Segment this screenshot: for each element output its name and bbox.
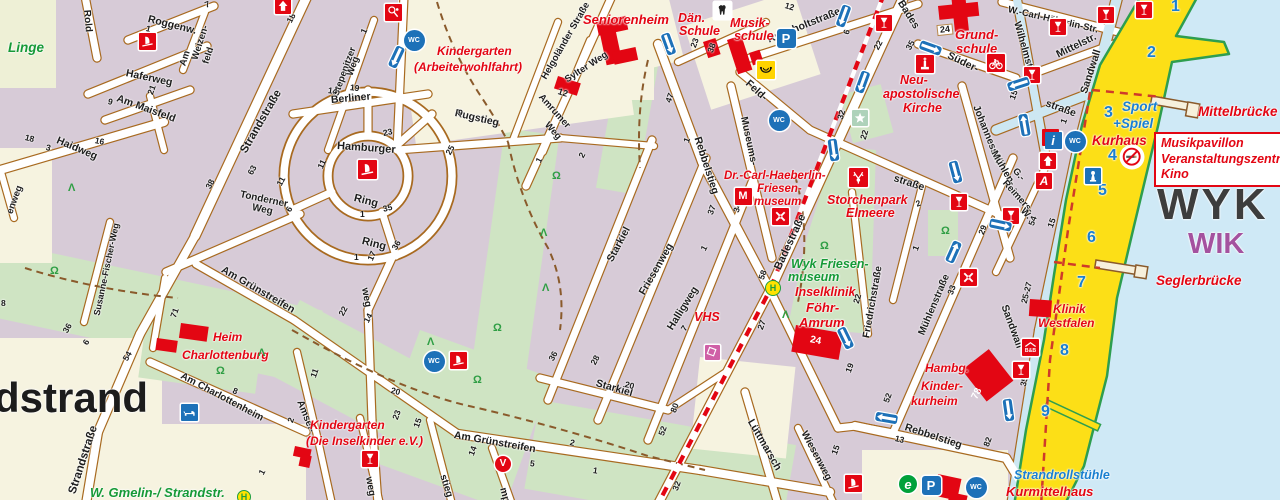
house-number: 38 — [706, 42, 717, 54]
oneway-arrow-icon — [837, 326, 855, 350]
house-number: 23 — [382, 127, 393, 137]
poi-label: Kindergarten — [437, 45, 512, 57]
oneway-arrow-icon — [1003, 398, 1015, 421]
poi-label: (Die Inselkinder e.V.) — [306, 435, 423, 447]
house-number: 23 — [391, 409, 402, 421]
house-number: 32 — [836, 109, 847, 120]
bnb-icon: B&B — [1022, 339, 1039, 356]
poi-label: WIK — [1188, 230, 1244, 259]
poi-label: W. Gmelin-/ Strandstr. — [90, 486, 225, 499]
poi-label: Föhr- — [806, 301, 839, 314]
house-number: 1 — [257, 468, 267, 476]
house-number: 5 — [529, 459, 535, 468]
wc-icon: WC — [966, 477, 987, 498]
poi-label: 78 — [971, 386, 985, 400]
dog-icon — [181, 404, 198, 421]
street-label: Friesenweg — [637, 242, 675, 297]
stag-icon — [849, 168, 868, 187]
church-icon — [916, 55, 934, 73]
wine-icon — [1013, 362, 1029, 378]
house-number: 35 — [904, 39, 916, 51]
echarge-icon: e — [899, 475, 917, 493]
street-label: Mühlenstraße — [917, 273, 952, 337]
house-number: 63 — [246, 164, 258, 176]
street-label: mp — [497, 486, 511, 500]
vegetation-icon: Λ — [540, 228, 547, 239]
oneway-arrow-icon — [661, 32, 677, 56]
poi-label: Elmeere — [846, 207, 895, 220]
house-number: 19 — [844, 362, 855, 374]
vegetation-icon: Ω — [493, 323, 502, 334]
house-number: 52 — [657, 425, 668, 437]
street-label: Ring — [361, 236, 387, 253]
tennis-icon — [385, 4, 402, 21]
house-number: 14 — [467, 445, 478, 457]
house-number: 37 — [706, 204, 717, 216]
house-number: 22 — [337, 305, 349, 317]
poi-label: WYK — [1157, 183, 1269, 227]
posthorn-icon — [757, 61, 775, 79]
house-number: 58 — [757, 269, 768, 281]
wine-icon — [1050, 19, 1066, 35]
house-number: 2 — [286, 416, 296, 423]
house-number: 54 — [1027, 215, 1038, 227]
oneway-arrow-icon — [945, 240, 962, 264]
house-number: 1 — [534, 156, 544, 164]
wc-icon: WC — [1065, 131, 1086, 152]
poi-label: +Spiel — [1113, 117, 1153, 131]
vegetation-icon: Ω — [820, 241, 829, 252]
street-label: Feld- — [743, 79, 769, 104]
vegetation-icon: Λ — [68, 183, 75, 194]
house-number: 1 — [911, 244, 921, 251]
street-label: straße — [1044, 99, 1077, 120]
house-number: 52 — [882, 392, 893, 404]
poi-label: 2 — [1147, 45, 1156, 61]
street-label: Wilhelmstr. — [1011, 20, 1035, 74]
house-number: 20 — [390, 386, 401, 397]
poi-label: Inselklinik — [795, 286, 855, 299]
house-number: 2 — [569, 438, 576, 447]
house-number: 18 — [24, 133, 35, 144]
wine-icon — [1098, 7, 1114, 23]
house-number: 12 — [784, 1, 795, 12]
poi-label: 7 — [1077, 275, 1086, 291]
vbank-icon: V — [495, 456, 511, 472]
house-number: 2 — [577, 151, 587, 159]
tooth-icon — [714, 2, 731, 19]
house-number: 1 — [1059, 117, 1069, 124]
wc-icon: WC — [424, 351, 445, 372]
vegetation-icon: Λ — [782, 310, 789, 321]
poi-label: Amrum — [799, 316, 845, 329]
house-number: 25 — [444, 144, 456, 156]
street-label: Friedrichstraße — [862, 265, 884, 338]
house-number: 22 — [872, 39, 884, 51]
house-number: 19 — [349, 83, 360, 93]
hostel-icon — [1040, 153, 1056, 169]
street-label: weg — [363, 476, 376, 497]
poi-label: Kurhaus — [1092, 134, 1147, 148]
windsurf-icon — [358, 160, 377, 179]
house-number: 15 — [412, 417, 423, 429]
house-number: 16 — [94, 136, 105, 146]
street-label: Wiesenweg — [799, 429, 833, 482]
wc-icon: WC — [769, 110, 790, 131]
street-label: weg — [359, 287, 372, 308]
poi-label: 9 — [1041, 404, 1050, 420]
map-overlay: Musikpavillon Veranstaltungszentr. Kino … — [0, 0, 1280, 500]
house-number: 11 — [309, 367, 320, 378]
poi-label: Kurmittelhaus — [1006, 485, 1093, 498]
vegetation-icon: Λ — [427, 337, 434, 348]
poi-label: 1 — [1171, 0, 1180, 15]
vegetation-icon: Ω — [473, 375, 482, 386]
vegetation-icon: Ω — [50, 266, 59, 277]
vegetation-icon: Λ — [542, 283, 549, 294]
poi-label: 5 — [1098, 183, 1107, 199]
street-label: Museums- — [738, 115, 758, 165]
street-label: Lüttmarsch — [745, 418, 783, 473]
poi-label: Grund- — [955, 28, 998, 41]
poi-label: 8 — [1060, 343, 1069, 359]
nosmoke-icon — [1121, 146, 1143, 168]
street-label: Haidweg — [55, 136, 99, 163]
windsurf-icon — [845, 475, 862, 492]
house-number: 82 — [982, 436, 993, 448]
poi-label: Dr.-Carl-Haeberlin- — [724, 171, 826, 183]
poi-label: Strandrollstühle — [1014, 469, 1110, 482]
museum-icon: M — [735, 188, 752, 205]
info-icon: i — [1045, 132, 1062, 149]
street-label: Am Grünstreifen — [219, 265, 296, 316]
house-number: 8 — [231, 386, 239, 396]
windmill-icon — [772, 208, 789, 225]
parking-icon: P — [777, 29, 796, 48]
street-label: Ring — [353, 193, 379, 210]
windsurf-icon — [450, 352, 467, 369]
house-number: 7 — [204, 0, 211, 9]
hostel-icon — [275, 0, 291, 14]
hstop-icon: H — [237, 490, 251, 500]
house-number: 11 — [316, 158, 328, 170]
poi-label: Klinik — [1053, 303, 1086, 315]
street-label: Rebbelstieg — [903, 422, 963, 450]
wine-icon — [876, 15, 892, 31]
house-number: 2 — [915, 199, 922, 209]
street-label: enweg — [6, 184, 25, 215]
musikpavillon-callout: Musikpavillon Veranstaltungszentr. Kino — [1154, 132, 1280, 187]
poi-label: museum — [788, 271, 839, 284]
house-number: 1 — [359, 27, 369, 35]
oneway-arrow-icon — [388, 45, 405, 69]
house-number: 9 — [107, 97, 114, 106]
poi-label: 24 — [809, 335, 822, 347]
poi-label: Westfalen — [1038, 317, 1094, 329]
street-label: Rold — [81, 9, 93, 32]
poi-label: Linge — [8, 41, 44, 55]
wine-icon — [1136, 2, 1152, 18]
street-label: 24 — [938, 25, 953, 35]
house-number: 14 — [362, 312, 374, 324]
poi-label: Heim — [213, 331, 242, 343]
street-label: Hamburger — [337, 141, 396, 156]
vegetation-icon: Ω — [216, 366, 225, 377]
parking-icon: P — [922, 476, 941, 495]
wine-icon — [951, 194, 967, 210]
house-number: 17 — [366, 250, 378, 262]
poi-label: Wyk Friesen- — [791, 258, 869, 271]
house-number: 36 — [61, 322, 73, 334]
street-label: straße — [892, 173, 925, 193]
street-label: Weg — [251, 203, 274, 217]
poi-label: Charlottenburg — [182, 349, 269, 361]
poi-label: schule — [956, 42, 997, 55]
bike-icon — [987, 54, 1005, 72]
map-canvas[interactable]: Musikpavillon Veranstaltungszentr. Kino … — [0, 0, 1280, 500]
poi-label: Seglerbrücke — [1156, 274, 1242, 288]
house-number: 38 — [204, 178, 216, 190]
house-number: 13 — [894, 434, 905, 445]
poi-label: Musik- — [730, 17, 770, 30]
poi-label: 3 — [1104, 105, 1113, 121]
house-number: 22 — [859, 129, 870, 140]
house-number: 8 — [1, 299, 6, 308]
house-number: 1 — [682, 136, 692, 143]
poi-label: museum — [754, 197, 801, 209]
house-number: 27 — [756, 319, 767, 331]
house-number: 33 — [946, 284, 957, 296]
oneway-arrow-icon — [919, 40, 943, 56]
street-label: dstrand — [0, 377, 148, 419]
house-number: 14 — [327, 86, 338, 96]
poi-label: Neu- — [900, 74, 928, 87]
house-number: 25-27 — [1020, 281, 1034, 304]
oneway-arrow-icon — [875, 412, 898, 425]
street-label: feld — [201, 46, 215, 65]
callout-line: Veranstaltungszentr. — [1161, 152, 1280, 168]
poi-label: Storchenpark — [827, 194, 908, 207]
poi-label: Kindergarten — [310, 419, 385, 431]
poi-label: (Arbeiterwohlfahrt) — [414, 61, 522, 73]
house-number: 6 — [81, 338, 91, 346]
street-label: Sylter Weg — [563, 50, 609, 85]
house-number: 28 — [589, 354, 601, 366]
house-number: 11 — [275, 175, 287, 187]
house-number: 7 — [679, 324, 689, 333]
house-number: 35 — [382, 203, 393, 214]
pink-icon — [705, 345, 720, 360]
vegetation-icon: Ω — [941, 226, 950, 237]
poi-label: Kirche — [903, 102, 942, 115]
house-number: 15 — [830, 444, 841, 456]
poi-label: Seniorenheim — [583, 13, 669, 26]
poi-label: 4 — [1108, 148, 1117, 164]
oneway-arrow-icon — [948, 160, 962, 184]
oneway-arrow-icon — [1007, 76, 1031, 91]
street-label: Strandstraße — [239, 88, 284, 155]
poi-label: 6 — [1087, 230, 1096, 246]
house-number: 21 — [146, 84, 157, 96]
oneway-arrow-icon — [1018, 113, 1031, 136]
house-number: 47 — [664, 92, 675, 104]
poi-label: Dän. — [678, 12, 705, 25]
street-label: Starkiel — [605, 225, 632, 263]
house-number: 23 — [689, 37, 700, 49]
house-number: 80 — [669, 402, 680, 414]
chess-icon — [1085, 168, 1101, 184]
vegetation-icon: Λ — [258, 348, 265, 359]
house-number: 20 — [624, 380, 635, 391]
oneway-arrow-icon — [855, 70, 871, 94]
poi-label: Schule — [679, 25, 720, 38]
poi-label: Hambg. — [925, 362, 969, 374]
windmill-icon — [960, 269, 977, 286]
wine-icon — [362, 451, 378, 467]
house-number: 1 — [699, 244, 709, 252]
house-number: 22 — [852, 293, 863, 304]
poi-label: Kinder- — [921, 380, 963, 392]
windsurf-icon — [139, 33, 156, 50]
house-number: 36 — [547, 350, 559, 362]
house-number: 1 — [360, 210, 365, 219]
house-number: 29 — [977, 224, 988, 236]
oneway-arrow-icon — [828, 138, 840, 161]
house-number: 3 — [45, 143, 52, 152]
house-number: 15 — [1046, 217, 1057, 229]
poi-label: schule — [734, 30, 774, 43]
house-number: 6 — [284, 205, 294, 213]
poi-label: VHS — [694, 311, 720, 324]
street-label: Bades — [896, 0, 922, 31]
poi-label: apostolische — [883, 88, 959, 101]
poi-label: Sport — [1122, 100, 1157, 114]
callout-line: Musikpavillon — [1161, 136, 1280, 152]
svg-text:B&B: B&B — [1024, 348, 1035, 354]
poi-label: Friesen- — [757, 184, 802, 196]
street-label: Sandwall — [999, 304, 1024, 350]
house-number: 1 — [592, 466, 598, 475]
house-number: 71 — [169, 307, 180, 319]
street-label: Susanne-Fischer-Weg — [93, 222, 121, 316]
house-number: 36 — [390, 239, 402, 251]
wc-icon: WC — [404, 30, 425, 51]
street-label: Sandwall — [1079, 49, 1103, 96]
house-number: 54 — [121, 350, 133, 362]
poi-label: kurheim — [911, 395, 958, 407]
house-number: 1 — [354, 253, 359, 262]
street-label: 12 — [557, 87, 569, 99]
apotheke-icon: A — [1036, 173, 1052, 189]
house-number: 6 — [842, 29, 851, 36]
vegetation-icon: Ω — [552, 171, 561, 182]
house-number: 32 — [671, 480, 682, 492]
star-icon — [852, 110, 868, 126]
street-label: Am Maisfeld — [115, 94, 177, 125]
street-label: stieg — [437, 473, 454, 498]
poi-label: Mittelbrücke — [1198, 105, 1278, 119]
street-label: Rebbelstieg — [692, 136, 720, 196]
hstop-icon: H — [765, 280, 781, 296]
